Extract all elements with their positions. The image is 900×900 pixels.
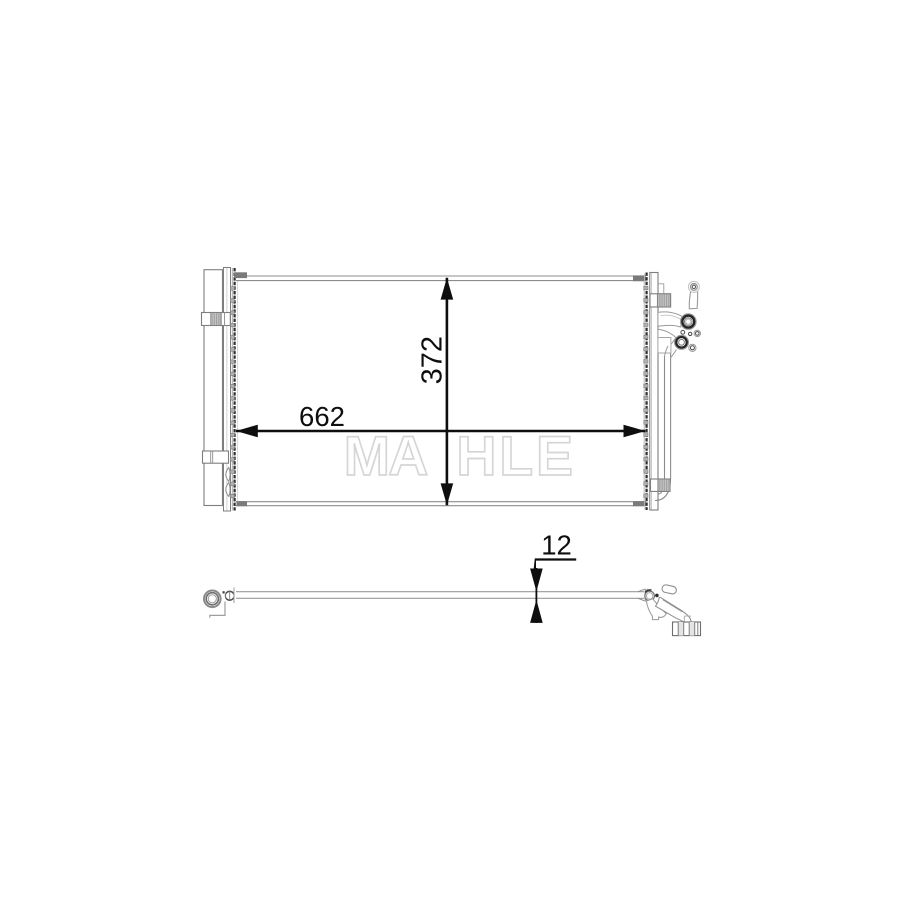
svg-text:MA: MA	[344, 425, 429, 487]
svg-text:HLE: HLE	[456, 425, 573, 487]
svg-text:12: 12	[541, 530, 572, 561]
svg-text:662: 662	[299, 401, 345, 432]
svg-text:372: 372	[417, 336, 449, 384]
